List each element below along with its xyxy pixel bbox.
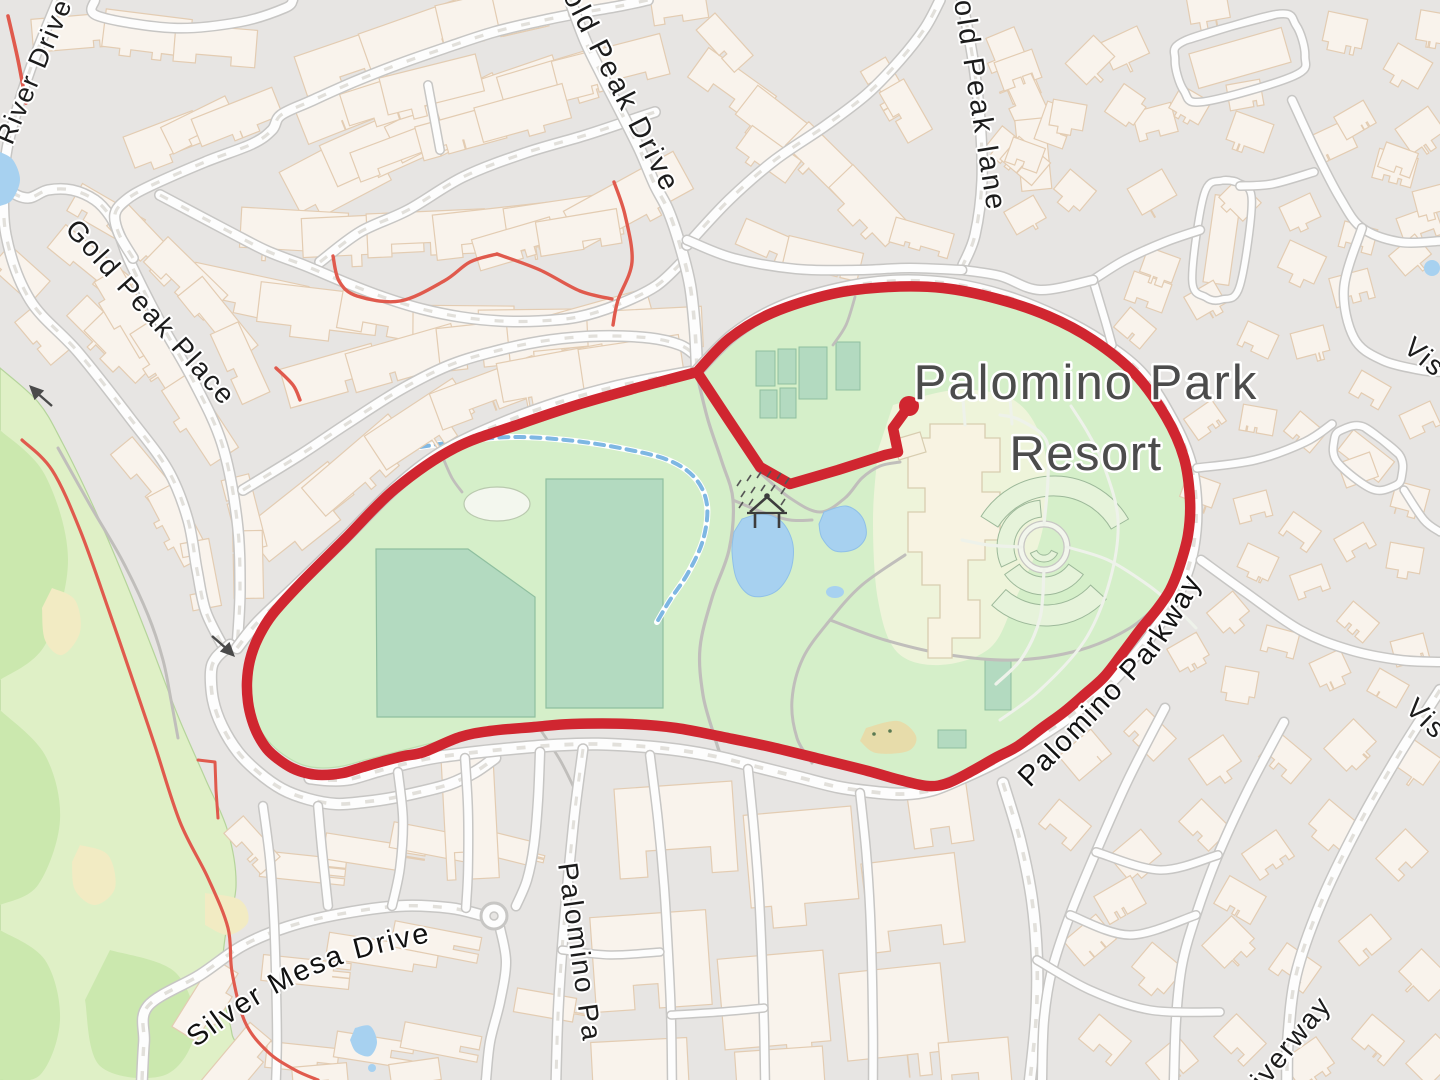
svg-text:Resort: Resort bbox=[1009, 427, 1162, 481]
svg-text:Palomino Park: Palomino Park bbox=[914, 356, 1259, 410]
